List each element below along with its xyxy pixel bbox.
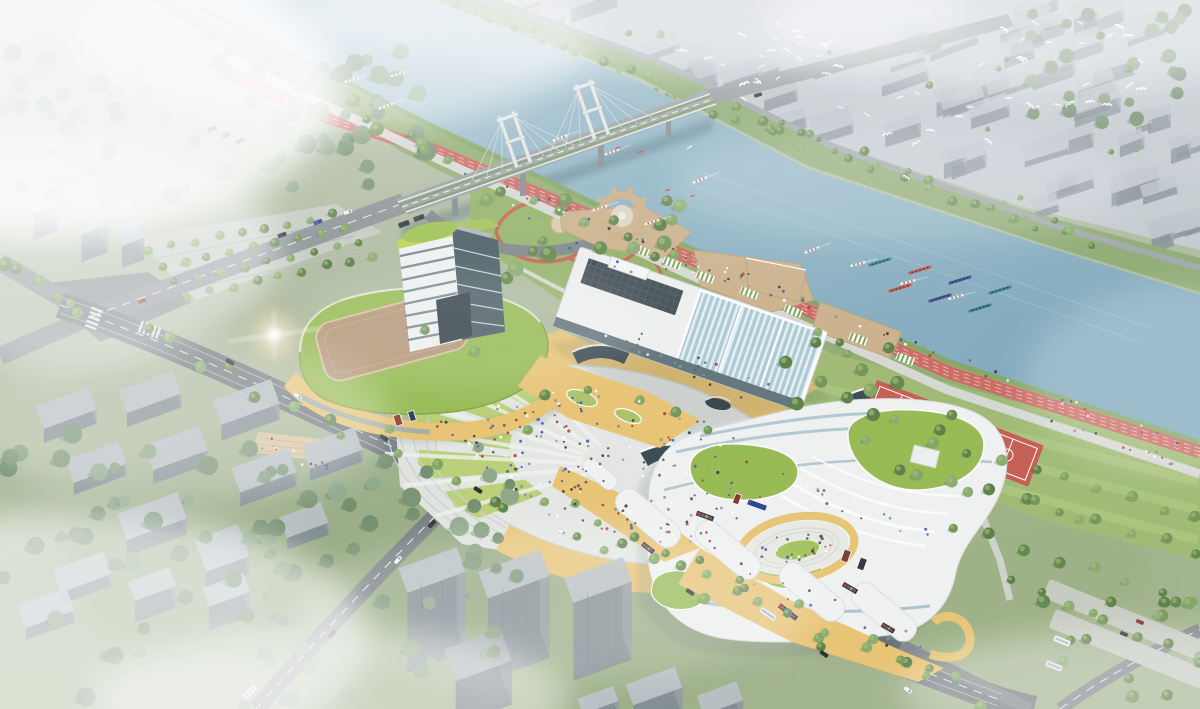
- aerial-rendering-stage: Aerial rendering - riverfront civic and …: [0, 0, 1200, 709]
- cool-tint: [0, 0, 1200, 709]
- aerial-rendering: Aerial rendering - riverfront civic and …: [0, 0, 1200, 709]
